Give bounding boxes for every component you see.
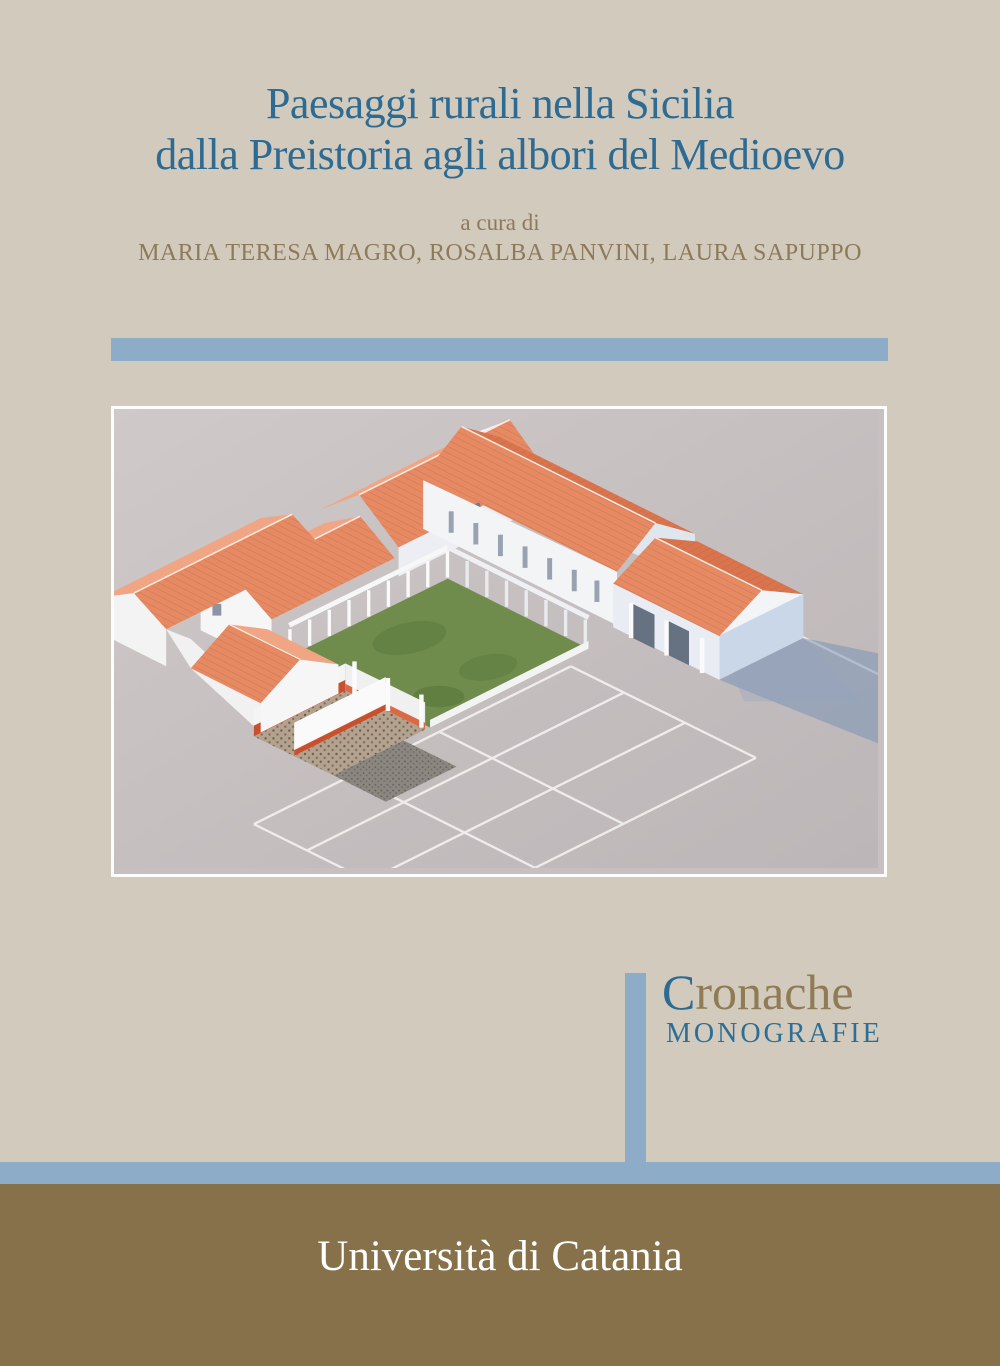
title-line-2: dalla Preistoria agli albori del Medioev… <box>0 129 1000 180</box>
decorative-blue-bar-bottom <box>0 1162 1000 1184</box>
series-name: Cronache <box>662 966 854 1018</box>
villa-reconstruction-image <box>114 409 878 868</box>
series-subtitle: MONOGRAFIE <box>666 1018 883 1050</box>
series-rest: ronache <box>695 964 853 1020</box>
publisher-name: Università di Catania <box>0 1232 1000 1281</box>
decorative-blue-bar-vertical <box>625 973 646 1184</box>
cover-image-frame <box>111 406 887 877</box>
decorative-blue-bar-top <box>111 338 888 361</box>
book-title: Paesaggi rurali nella Sicilia dalla Prei… <box>0 78 1000 180</box>
editors-names: MARIA TERESA MAGRO, ROSALBA PANVINI, LAU… <box>0 240 1000 267</box>
series-initial: C <box>662 964 695 1020</box>
curated-by-label: a cura di <box>0 210 1000 236</box>
title-line-1: Paesaggi rurali nella Sicilia <box>0 78 1000 129</box>
book-cover: Paesaggi rurali nella Sicilia dalla Prei… <box>0 0 1000 1366</box>
